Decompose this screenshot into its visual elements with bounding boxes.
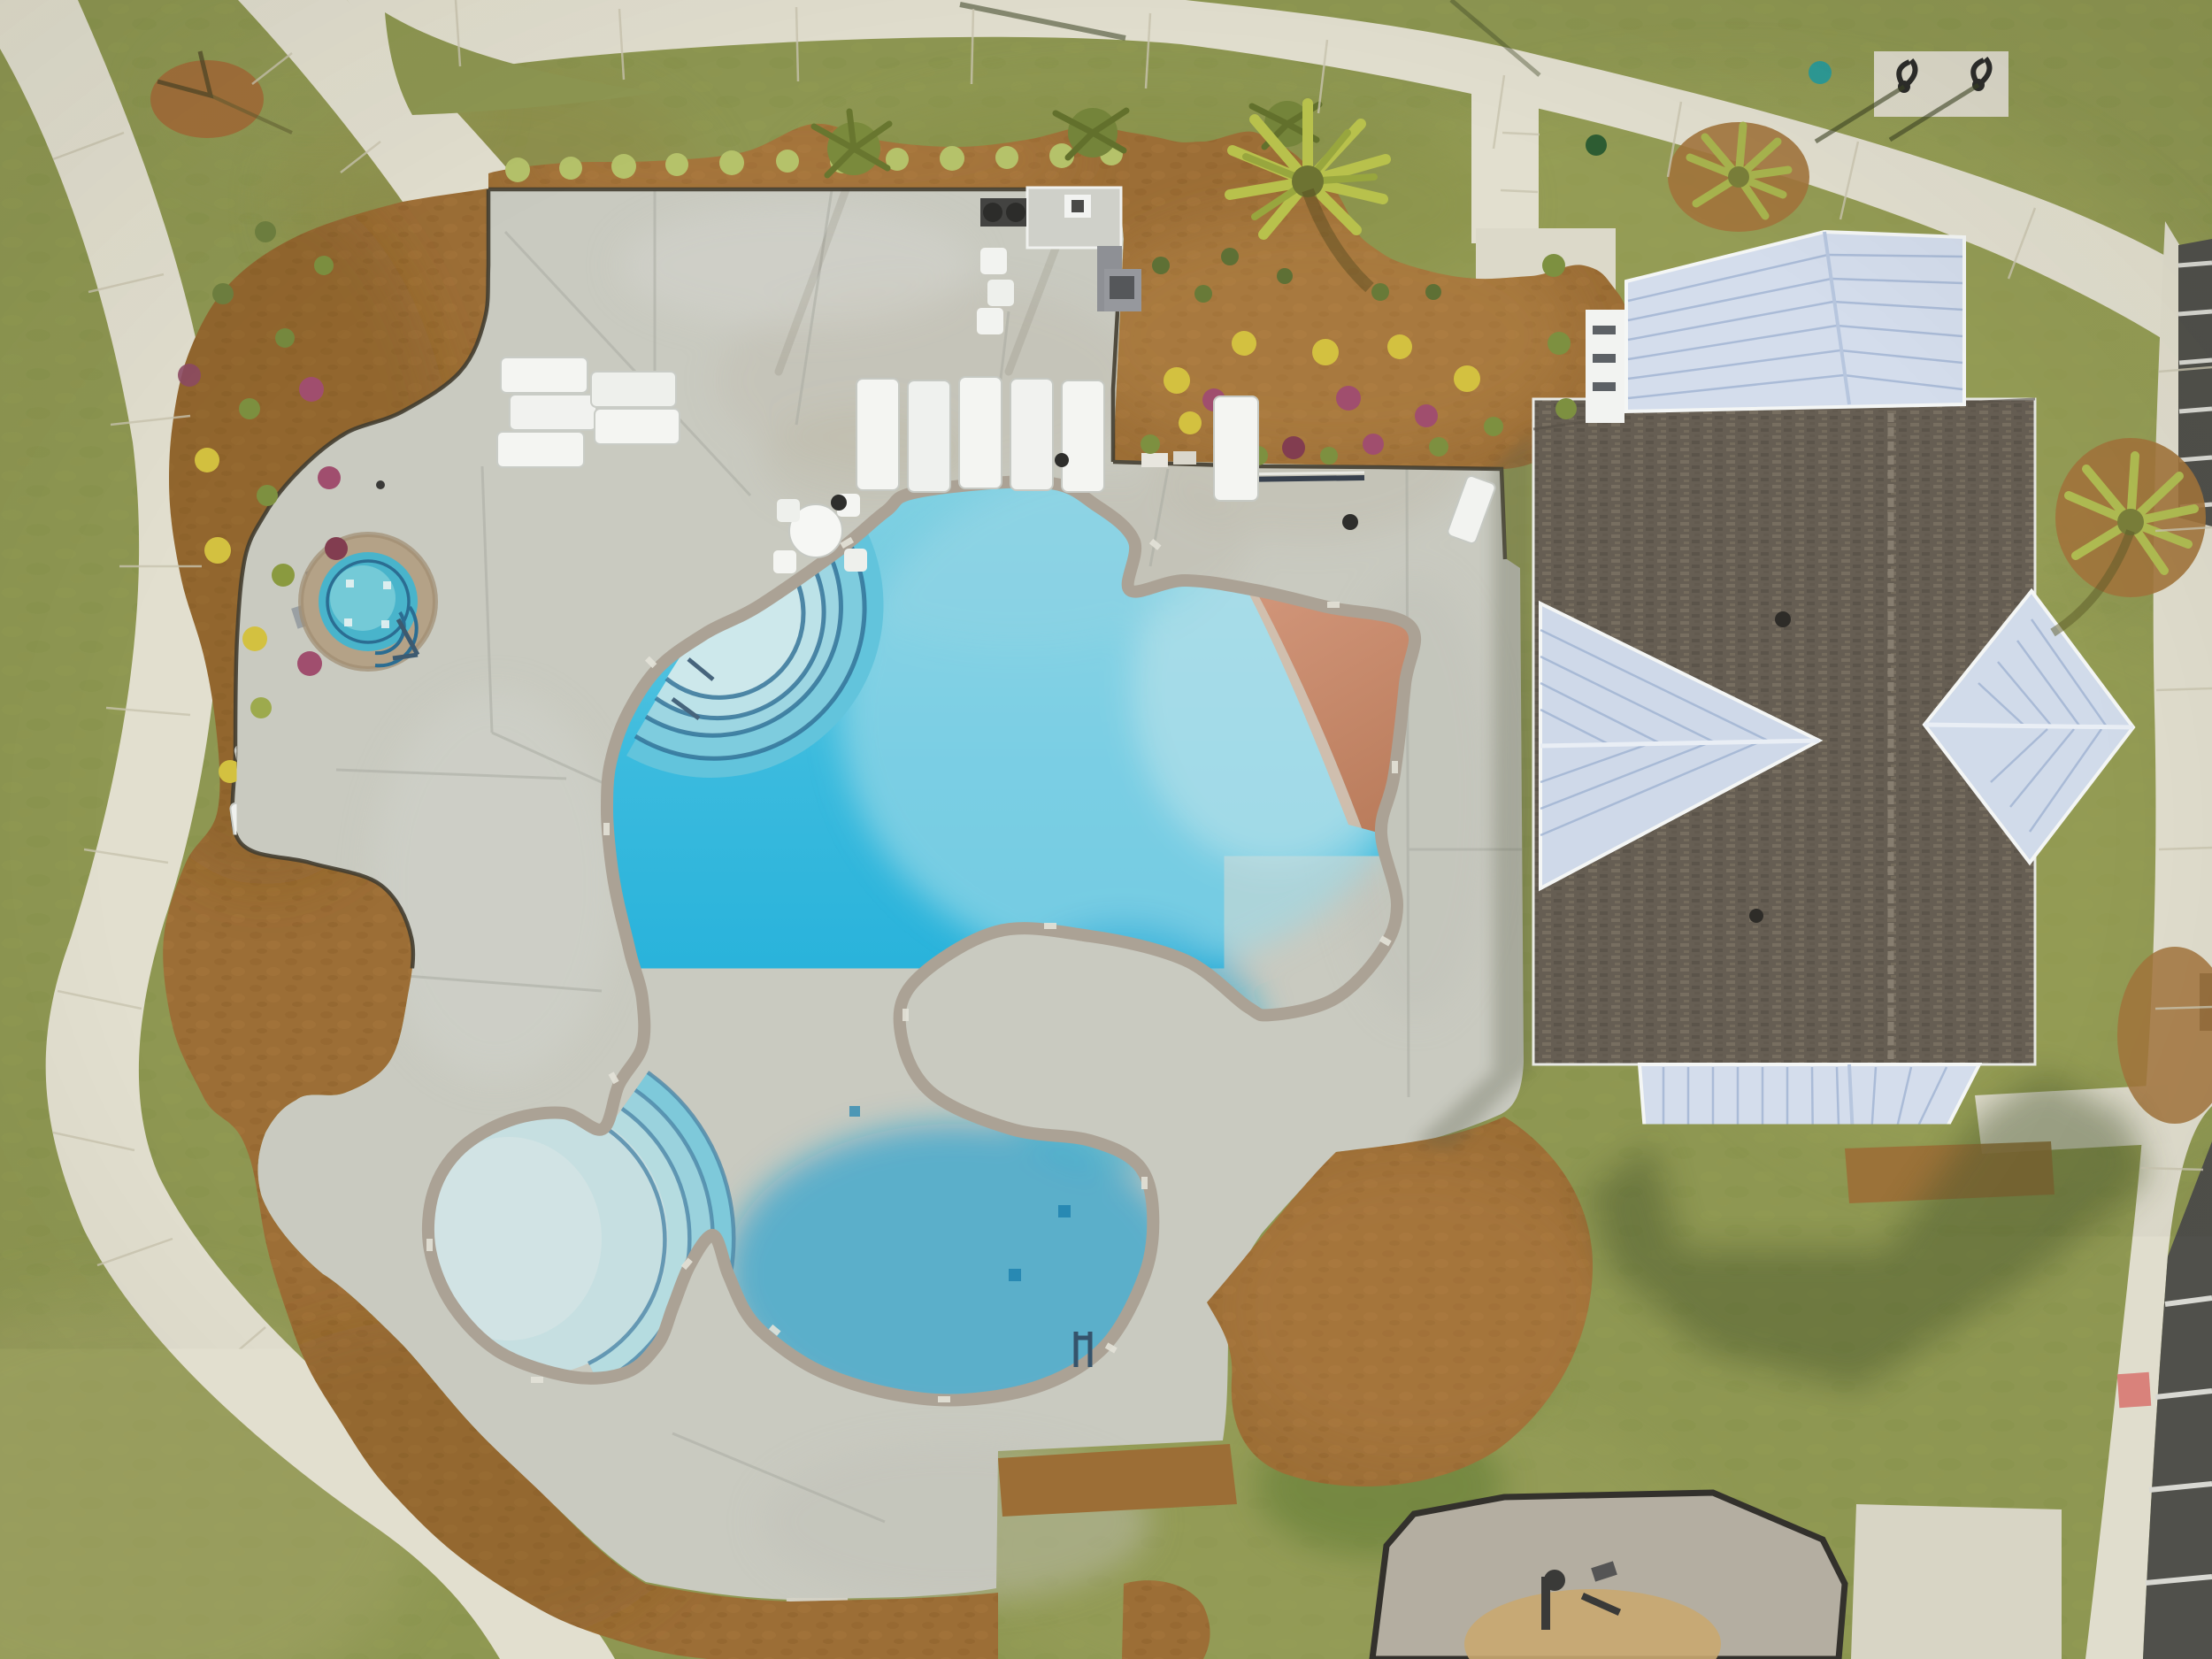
svg-text:©2026 Hive MLS: ©2026 Hive MLS: [9, 1535, 425, 1596]
